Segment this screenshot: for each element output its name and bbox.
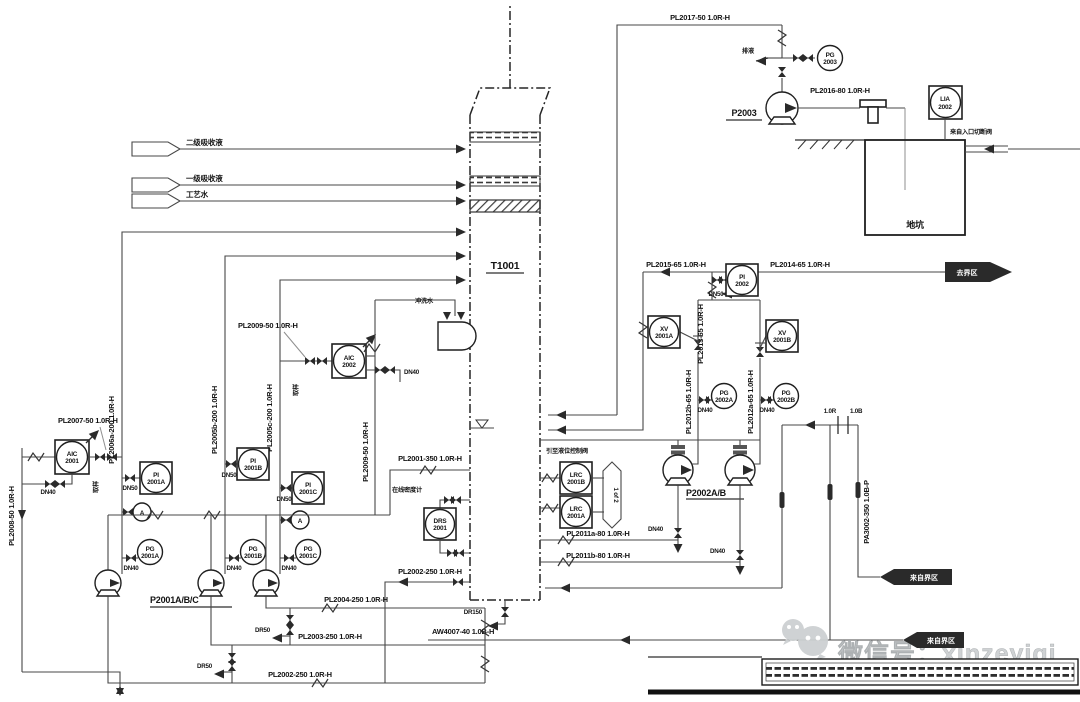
pipe-label-pl2017: PL2017-50 1.0R-H [670,13,730,22]
pump-p2001c-symbol [253,570,279,596]
svg-text:2002: 2002 [735,281,749,288]
dr50-drain-2: DR50 [197,645,236,683]
pipe-label-pl2014: PL2014-65 1.0R-H [770,260,830,269]
pump-p2001-tag: P2001A/B/C [150,595,199,605]
svg-text:2001: 2001 [433,525,447,532]
svg-text:PG: PG [720,390,729,397]
notes-text-illegible [766,663,1074,681]
svg-text:DRS: DRS [434,518,448,525]
inlet-flag-right-label: 来自界区 [909,573,938,582]
liquid-level-mark [470,420,494,428]
pipe-label-pl2009-vertical: PL2009-50 1.0R-H [361,422,370,482]
pipe-label-pl2013: PL2013-65 1.0R-H [696,304,705,364]
pipe-label-pl2011b: PL2011b-80 1.0R-H [566,551,630,560]
pipe-label-pl2004: PL2004-250 1.0R-H [324,595,388,604]
demister-pad-upper [470,132,540,142]
overhead-line-pl2017: PL2017-50 1.0R-H [548,13,782,420]
size-dr50: DR50 [255,627,271,634]
pit-inlet-line: 来自入口切断阀 [949,128,1080,154]
svg-text:PG: PG [304,546,313,553]
size-dn40: DN40 [648,526,664,533]
size-dn40: DN40 [710,548,726,555]
packed-bed [470,200,540,212]
tower-tag: T1001 [491,260,520,272]
size-dn50: DN50 [708,291,724,298]
instrument-pi2001a-cluster: PI 2001A DN50 A [122,462,172,521]
pipe-label-pl2011a: PL2011a-80 1.0R-H [566,529,629,538]
drs-cluster: DRS 2001 在线密度计 [392,486,470,557]
outlet-flag-right: 去界区 [940,262,1012,282]
svg-text:PI: PI [305,482,311,489]
feed-flag-3 [132,194,180,208]
left-risers: PL2006a-200 1.0R-H PL2005b-200 1.0R-H PL… [107,228,466,575]
size-dn40: DN40 [40,489,56,496]
pipe-label-pl2005b: PL2005b-200 1.0R-H [210,386,219,454]
pump-p2001a-symbol [95,570,121,596]
analyzer-a: A [140,510,145,517]
size-dn40: DN40 [759,407,775,414]
density-note: 在线密度计 [392,486,423,494]
pid-diagram-svg: T1001 二级吸收液 一级吸收液 工艺水 PL2017-50 1.0R-H P… [0,0,1080,702]
instrument-pg2003: PG 2003 [818,46,843,71]
pit-label: 地坑 [906,219,924,230]
flow-arrow-down [18,510,26,520]
svg-text:2001B: 2001B [567,479,585,486]
instrument-pi2002-cluster: PI 2002 DN50 [708,264,758,298]
selector-label: 1 of 2 [612,488,619,504]
drain-note: 排液 [742,47,755,55]
size-dn50: DN50 [122,485,138,492]
flush-water-note: 冲洗水 [415,297,434,305]
pump-p2003-tag: P2003 [731,108,756,118]
pipe-label-pl2002-bottom: PL2002-250 1.0R-H [268,670,332,679]
instrument-pg2001a-cluster: PG 2001A DN40 [122,540,163,573]
size-dr150: DR150 [464,609,483,616]
pump-p2003-assembly: PG 2003 排液 P2003 PL2016-80 1.0R-H [726,25,905,190]
instrument-drs2001: DRS 2001 [424,508,456,540]
demister-pad-lower [470,176,540,186]
instrument-lrc2001a: LRC 2001A [560,496,592,528]
battery-limit-area: 1.0R 1.0B PA3002-350 1.0B-P 来自界区 [780,408,953,640]
svg-text:2002: 2002 [342,362,356,369]
pump-p2002b-symbol [725,455,755,485]
analyzer-a: A [298,518,303,525]
inlet-flag-bottom-label: 来自界区 [926,636,955,645]
pipe-label-pl2015: PL2015-65 1.0R-H [646,260,706,269]
svg-text:2001B: 2001B [773,337,791,344]
size-dr50: DR50 [197,663,213,670]
pit-inlet-note: 来自入口切断阀 [949,128,992,136]
instrument-aic2002: AIC 2002 [332,331,379,378]
flush-water-distributor: 冲洗水 [375,297,476,350]
instrument-xv2001a: XV 2001A [648,316,680,348]
lrc-note: 引至液位控制阀 [546,447,588,455]
svg-text:PI: PI [250,458,256,465]
flange-tee [860,100,886,107]
size-dn40: DN40 [404,369,420,376]
svg-text:PI: PI [153,472,159,479]
notes-bar [648,657,1080,692]
pipe-label-pl2003: PL2003-250 1.0R-H [298,632,362,641]
size-dn50: DN50 [276,496,292,503]
size-dn50: DN50 [221,472,237,479]
inlet-flag-right: 来自界区 [880,569,952,585]
feed-flag-2-label: 一级吸收液 [186,173,223,183]
pipe-label-pl2001: PL2001-350 1.0R-H [398,454,462,463]
svg-text:2001A: 2001A [147,479,165,486]
svg-text:PI: PI [739,274,745,281]
sample-note: 取样 [292,384,300,396]
pipe-label-pl2012a: PL2012a-65 1.0R-H [746,370,755,434]
pump-p2002a-symbol [663,455,693,485]
pipe-label-pl2012b: PL2012b-65 1.0R-H [684,370,693,434]
svg-text:2003: 2003 [823,59,837,66]
pipe-label-pl2002-tower: PL2002-250 1.0R-H [398,567,462,576]
svg-text:2001: 2001 [65,458,79,465]
svg-text:2001C: 2001C [299,489,317,496]
svg-text:2001B: 2001B [244,465,262,472]
instrument-pg2002b-cluster: PG 2002B DN40 [759,384,798,415]
pipe-label-pl2016: PL2016-80 1.0R-H [810,86,870,95]
boundary-left-label: 1.0R [824,408,837,415]
svg-text:2001A: 2001A [567,513,585,520]
sample-note: 取样 [92,481,100,493]
size-dn40: DN40 [697,407,713,414]
svg-text:2002: 2002 [938,104,952,111]
svg-text:2001A: 2001A [141,553,159,560]
svg-text:AIC: AIC [67,451,78,458]
svg-text:LRC: LRC [570,506,583,513]
svg-text:2002A: 2002A [715,397,733,404]
instrument-xv2001b: XV 2001B [766,320,798,352]
instrument-pg2001c-cluster: PG 2001C DN40 [280,540,321,573]
svg-text:XV: XV [660,326,669,333]
dr50-drain-1: DR50 [255,608,294,645]
feed-flag-2 [132,178,180,192]
feed-flag-1-label: 二级吸收液 [186,137,223,147]
instrument-lrc2001b: LRC 2001B [560,462,592,494]
size-dn40: DN40 [226,565,242,572]
pump-p2002-tag: P2002A/B [686,488,727,498]
pipe-label-pl2005c: PL2005c-200 1.0R-H [265,384,274,452]
feed-flag-3-label: 工艺水 [186,189,209,199]
pump-p2003-symbol [766,92,798,124]
boundary-right-label: 1.0B [850,408,863,415]
drain-arrow-icon [756,57,768,66]
instrument-pi2001c-cluster: PI 2001C DN50 A [276,472,324,529]
svg-text:PG: PG [782,390,791,397]
svg-text:PG: PG [146,546,155,553]
svg-text:2002B: 2002B [777,397,795,404]
ground-hatch [798,140,854,149]
svg-text:LRC: LRC [570,472,583,479]
instrument-aic2001: AIC 2001 [55,427,102,474]
svg-text:PG: PG [826,52,835,59]
pump-p2001b-symbol [198,570,224,596]
size-dn40: DN40 [123,565,139,572]
svg-text:2001A: 2001A [655,333,673,340]
instrument-pi2001b-cluster: PI 2001B DN50 [221,448,269,480]
pipe-label-pl2008: PL2008-50 1.0R-H [7,486,16,546]
svg-text:AIC: AIC [344,355,355,362]
svg-text:2001B: 2001B [244,553,262,560]
feed-flags: 二级吸收液 一级吸收液 工艺水 [132,137,466,208]
outlet-flag-right-label: 去界区 [957,268,978,277]
size-dn40: DN40 [281,565,297,572]
pipe-label-pa3002: PA3002-350 1.0B-P [862,480,871,544]
feed-flag-1 [132,142,180,156]
pipe-label-pl2006a: PL2006a-200 1.0R-H [107,396,116,464]
svg-text:PG: PG [249,546,258,553]
lrc-cluster: LRC 2001B LRC 2001A 1 of 2 引至液位控制阀 [540,447,621,528]
instrument-pg2001b-cluster: PG 2001B DN40 [225,540,266,573]
dr150-drain: DR150 [464,600,509,631]
pipe-label-pl2009: PL2009-50 1.0R-H [238,321,298,330]
tower-t1001: T1001 [470,4,550,600]
pid-diagram-page: T1001 二级吸收液 一级吸收液 工艺水 PL2017-50 1.0R-H P… [0,0,1080,702]
svg-text:LIA: LIA [940,96,950,103]
svg-text:2001C: 2001C [299,553,317,560]
instrument-pg2002a-cluster: PG 2002A DN40 [697,384,736,415]
svg-text:XV: XV [778,330,787,337]
